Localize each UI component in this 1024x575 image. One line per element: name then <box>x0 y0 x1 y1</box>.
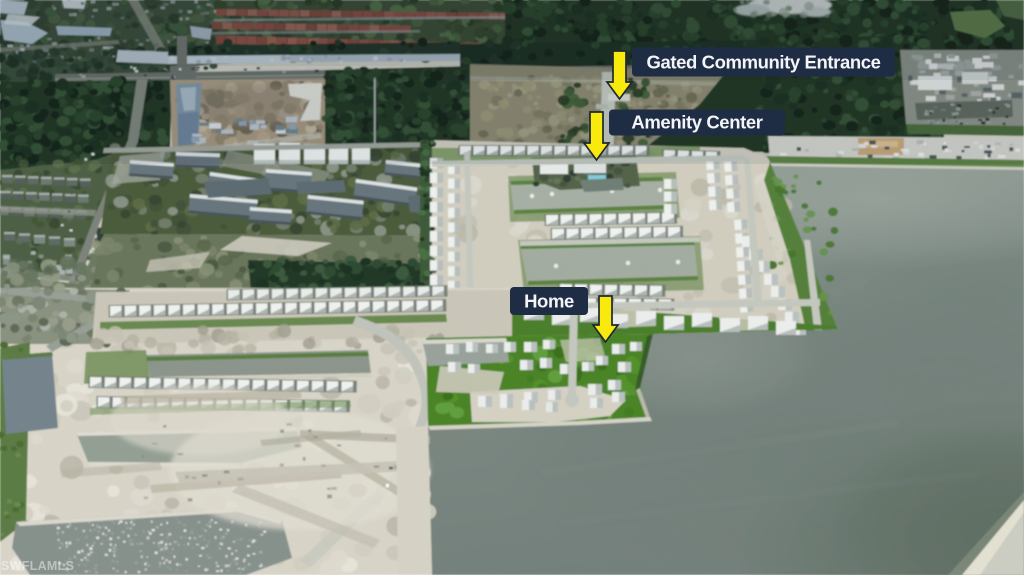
svg-text:Amenity Center: Amenity Center <box>631 112 762 133</box>
svg-text:Gated Community Entrance: Gated Community Entrance <box>646 52 880 73</box>
svg-text:Home: Home <box>524 291 574 312</box>
svg-text:SWFLAMLS: SWFLAMLS <box>1 559 74 573</box>
